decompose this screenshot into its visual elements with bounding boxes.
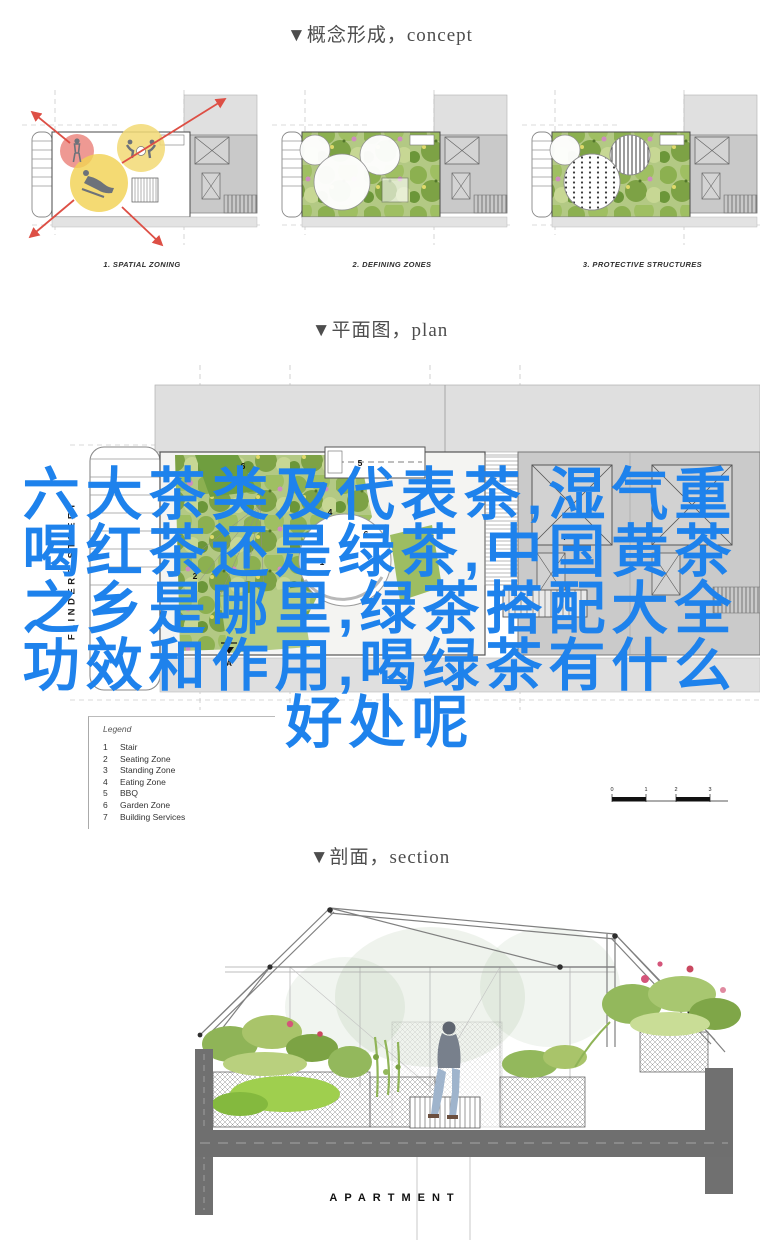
legend-row: 2Seating Zone (103, 754, 275, 766)
plan-section-title: ▼平面图，plan (0, 315, 760, 342)
legend-row: 3Standing Zone (103, 765, 275, 777)
overlay-line: 之乡是哪里,绿茶搭配大全 (0, 581, 760, 638)
scale-tick-1: 1 (644, 787, 647, 793)
section-section-title: ▼剖面，section (0, 842, 760, 869)
legend-row: 4Eating Zone (103, 777, 275, 789)
overlay-line: 六大茶类及代表茶,湿气重 (0, 467, 760, 524)
apartment-label: APARTMENT (300, 1192, 490, 1204)
scale-bar: 0 1 2 3 (610, 787, 728, 802)
page: ▼概念形成，concept (0, 0, 760, 1240)
overlay-text: 六大茶类及代表茶,湿气重 喝红茶还是绿茶,中国黄茶 之乡是哪里,绿茶搭配大全 功… (0, 467, 760, 752)
overlay-line: 好处呢 (0, 695, 760, 752)
concept-section-title: ▼概念形成，concept (0, 20, 760, 47)
overlay-line: 功效和作用,喝绿茶有什么 (0, 638, 760, 695)
legend-row: 7Building Services (103, 812, 275, 824)
legend-row: 5BBQ (103, 788, 275, 800)
legend-row: 6Garden Zone (103, 800, 275, 812)
section-drawing (170, 872, 750, 1240)
overlay-line: 喝红茶还是绿茶,中国黄茶 (0, 524, 760, 581)
scale-tick-0: 0 (610, 787, 613, 793)
scale-tick-3: 3 (708, 787, 711, 793)
scale-tick-2: 2 (674, 787, 677, 793)
